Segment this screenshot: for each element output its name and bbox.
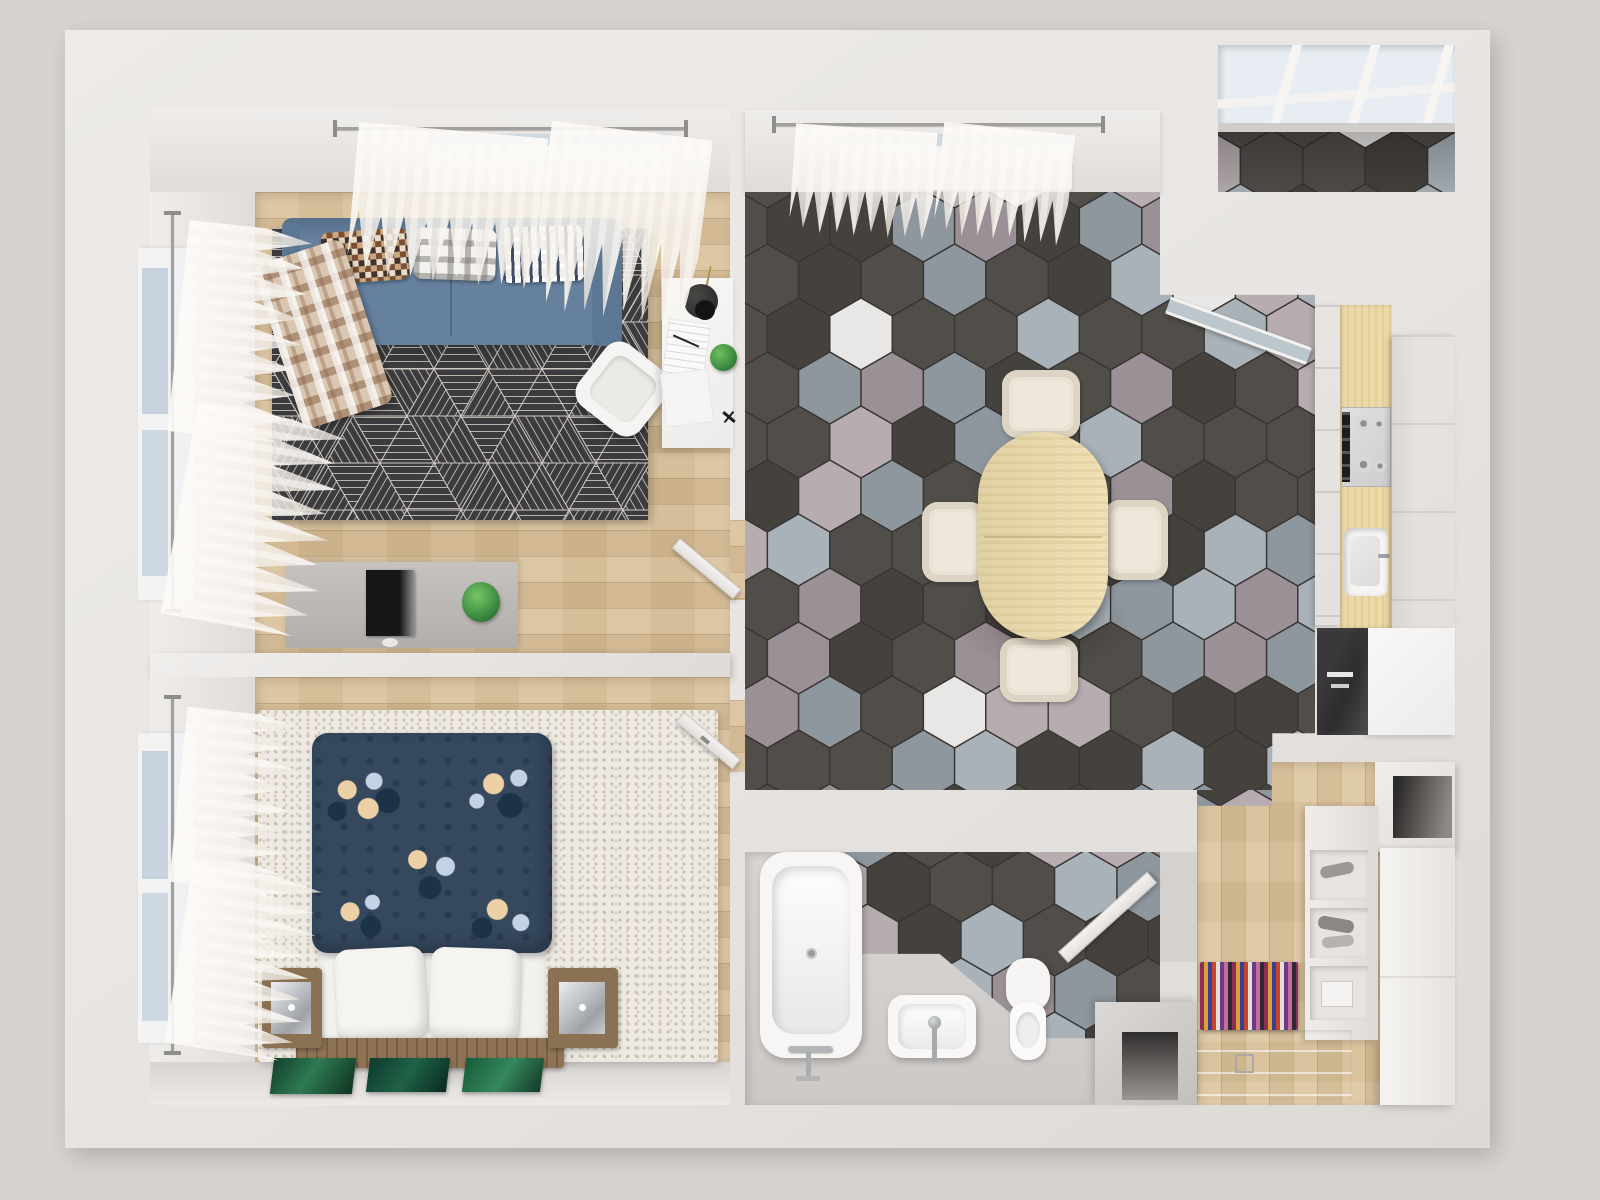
bathroom-doorway-threshold: [1160, 852, 1197, 962]
tv: [366, 570, 414, 636]
kitchen-lower-cabinet: [1368, 628, 1455, 735]
rod-bracket: [772, 116, 776, 133]
armchair-seat: [585, 351, 661, 427]
kitchen-sink: [1344, 528, 1388, 596]
toilet-bowl: [1010, 1002, 1046, 1060]
dining-table-seam: [984, 536, 1102, 538]
rod-bracket: [684, 120, 688, 137]
console-plant: [462, 582, 500, 622]
shoe: [1319, 861, 1355, 880]
stored-box: [1322, 982, 1352, 1006]
nightstand-right-knob: [579, 1004, 586, 1011]
nightstand-right: [548, 968, 618, 1048]
bed-pillow-right: [428, 946, 521, 1041]
shoe: [1317, 915, 1355, 934]
mat-drain-square: [1235, 1054, 1254, 1073]
balcony-skylight: [1218, 45, 1455, 132]
desk-paper-2: [661, 369, 713, 426]
desk-lamp-bulb: [695, 300, 715, 320]
rod-bracket: [164, 211, 181, 215]
stove-burner: [1373, 418, 1385, 430]
window-glass-pane: [142, 893, 168, 1021]
dark-display-cabinet: [1317, 628, 1368, 735]
dining-chair-bottom: [1000, 638, 1078, 702]
shelf-compartment: [1310, 850, 1368, 900]
shoe-shelf-unit: [1305, 806, 1378, 1040]
duvet-flowers-5: [462, 883, 546, 949]
skylight-mullion-v1: [1265, 45, 1304, 132]
desk-plant: [710, 344, 737, 371]
wardrobe-seam: [1380, 976, 1455, 978]
sink-faucet: [1378, 554, 1390, 558]
cabinet-shelf-item-2: [1331, 684, 1349, 688]
fridge-tall-cabinet: [1392, 335, 1455, 628]
wall-art-green-3: [462, 1058, 544, 1092]
stove-burner: [1356, 416, 1371, 431]
floorplan-render: [0, 0, 1600, 1200]
rod-bracket: [1101, 116, 1105, 133]
dining-chair-right: [1104, 500, 1168, 580]
bathtub: [760, 852, 862, 1058]
bed-duvet: [312, 733, 552, 953]
toilet-seat: [1016, 1012, 1040, 1048]
entry-mat: [1197, 1030, 1352, 1100]
duvet-flowers-4: [318, 883, 398, 947]
basin-faucet-stem: [932, 1028, 937, 1062]
chair-seat: [1012, 380, 1070, 428]
rod-bracket: [164, 695, 181, 699]
shoe: [1322, 934, 1355, 948]
hall-wardrobe: [1380, 848, 1455, 1105]
entry-door-niche: [1122, 1032, 1178, 1100]
window-glass-pane: [142, 430, 168, 576]
bathtub-drain: [806, 948, 817, 959]
sink-basin: [1350, 536, 1380, 586]
chair-seat: [1010, 648, 1068, 692]
duvet-flowers: [322, 761, 406, 833]
chair-seat: [1114, 510, 1158, 570]
nightstand-left-knob: [288, 1004, 295, 1011]
stove: [1342, 408, 1390, 486]
wall-art-green-2: [366, 1058, 450, 1092]
tv-stand-base: [382, 638, 398, 647]
corridor-floor-hex: [1197, 790, 1272, 806]
rod-bracket: [333, 120, 337, 137]
cabinet-shelf-item: [1327, 672, 1353, 677]
window-glass-pane: [142, 268, 168, 414]
tub-faucet-handle: [796, 1076, 820, 1081]
skylight-ledge: [1218, 123, 1455, 132]
chair-seat: [932, 512, 976, 572]
hall-striped-rug: [1200, 962, 1298, 1030]
stove-burner: [1374, 460, 1386, 472]
hall-wall-niche: [1393, 776, 1452, 838]
shelf-compartment: [1310, 966, 1368, 1020]
stove-burner: [1355, 456, 1372, 473]
wall-living-bedroom: [150, 653, 730, 677]
shelf-compartment: [1310, 908, 1368, 958]
wall-art-green-1: [270, 1058, 356, 1094]
window-glass-pane: [142, 751, 168, 879]
stove-control-strip: [1342, 412, 1350, 482]
skylight-mullion-h: [1218, 82, 1455, 109]
bed-pillow-left: [334, 946, 429, 1043]
dining-chair-left: [922, 502, 986, 582]
kitchen-cabinet-strip: [1315, 305, 1340, 625]
rod-bracket: [164, 1051, 181, 1055]
duvet-flowers-2: [460, 755, 544, 827]
dining-chair-top: [1002, 370, 1080, 438]
balcony-floor-shade: [1218, 132, 1455, 192]
